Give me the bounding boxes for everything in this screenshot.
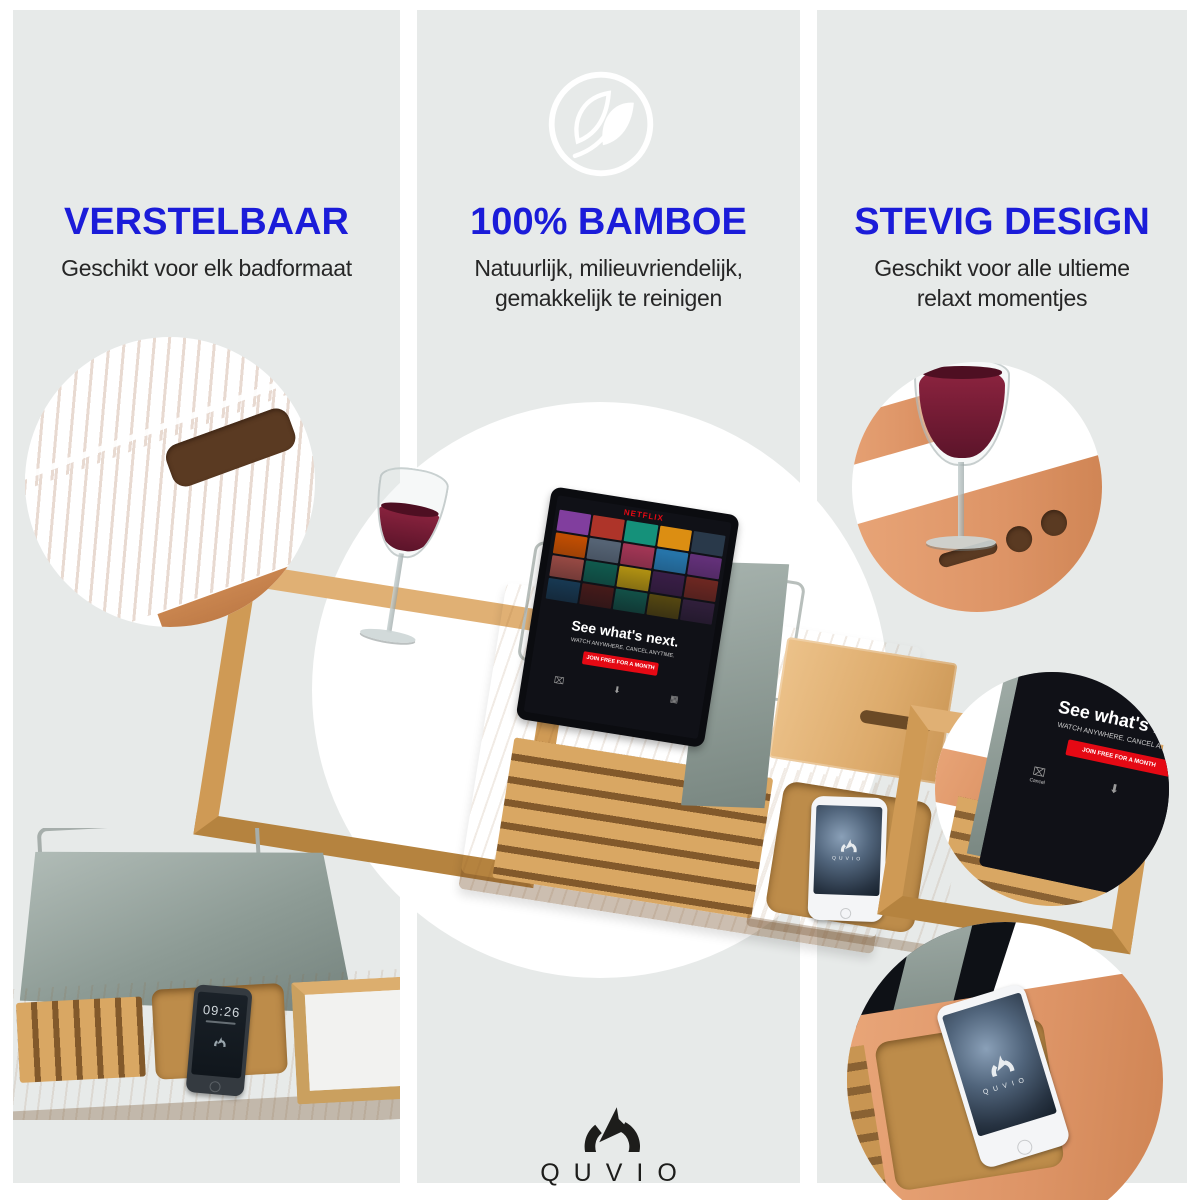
feature-title-verstelbaar: VERSTELBAAR: [13, 201, 400, 244]
brand-wordmark: QUVIO: [417, 1159, 800, 1188]
product-infographic: VERSTELBAAR Geschikt voor elk badformaat…: [0, 0, 1200, 1200]
feature-subtitle-stevig: Geschikt voor alle ultieme relaxt moment…: [817, 253, 1187, 313]
download-icon: ⬇: [612, 684, 621, 696]
quvio-logo-mark: [577, 1082, 641, 1152]
download-icon: ⬇: [1107, 781, 1121, 802]
feature-subtitle-stevig-line1: Geschikt voor alle ultieme: [817, 253, 1187, 283]
tablet-netflix-screen: NETFLIX See what's next. WATCH ANYWHERE.…: [524, 495, 732, 739]
phone-wallpaper-brand: QUVIO: [814, 855, 880, 863]
detail-circle-tablet: See what's next. WATCH ANYWHERE. CANCEL …: [935, 672, 1169, 906]
feature-title-stevig: STEVIG DESIGN: [817, 201, 1187, 244]
tablet: NETFLIX See what's next. WATCH ANYWHERE.…: [516, 486, 740, 748]
tray-slats-front: [16, 996, 146, 1082]
feature-subtitle-bamboe-line1: Natuurlijk, milieuvriendelijk,: [417, 253, 800, 283]
ticket-icon: ⌧: [553, 675, 565, 687]
lock-screen-date-line: [206, 1020, 236, 1025]
leaf-icon: [543, 66, 659, 182]
browse-icon: ▦: [669, 693, 679, 705]
glass-hole-2: [1038, 507, 1070, 539]
lock-screen-time: 09:26: [196, 1001, 247, 1020]
phone-lock: 09:26: [186, 984, 253, 1097]
feature-subtitle-bamboe-line2: gemakkelijk te reinigen: [417, 283, 800, 313]
ticket-icon: ⌧Cancel: [1029, 764, 1048, 786]
phone: QUVIO: [807, 796, 887, 923]
tray-front-photo: 09:26: [13, 828, 400, 1120]
detail-circle-wine-holder: [852, 362, 1102, 612]
wine-glass-detail: [914, 362, 1006, 588]
feature-subtitle-verstelbaar: Geschikt voor elk badformaat: [13, 253, 400, 283]
glass-hole-1: [1003, 523, 1035, 555]
detail-circle-adjustable-arm: [25, 337, 315, 627]
open-frame-front: [291, 975, 400, 1105]
brand-logo: QUVIO: [417, 1082, 800, 1188]
feature-subtitle-bamboe: Natuurlijk, milieuvriendelijk, gemakkeli…: [417, 253, 800, 313]
feature-subtitle-stevig-line2: relaxt momentjes: [817, 283, 1187, 313]
feature-title-bamboe: 100% BAMBOE: [417, 201, 800, 244]
